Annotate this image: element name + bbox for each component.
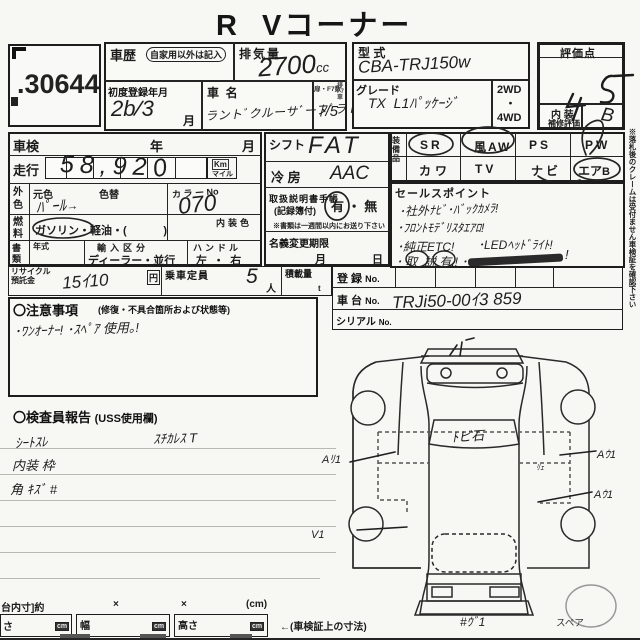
svg-text:ﾘｪ: ﾘｪ [536,463,545,472]
svg-text:スペア: スペア [556,618,584,629]
svg-text:Aｳ1: Aｳ1 [593,489,613,501]
svg-text:V1: V1 [311,529,324,541]
svg-text:Aｳ1: Aｳ1 [596,449,616,461]
svg-text:ﾄビ石: ﾄビ石 [451,428,486,445]
svg-text:Aﾘ1: Aﾘ1 [321,454,341,466]
svg-text:#ｳﾞ1: #ｳﾞ1 [460,615,485,629]
